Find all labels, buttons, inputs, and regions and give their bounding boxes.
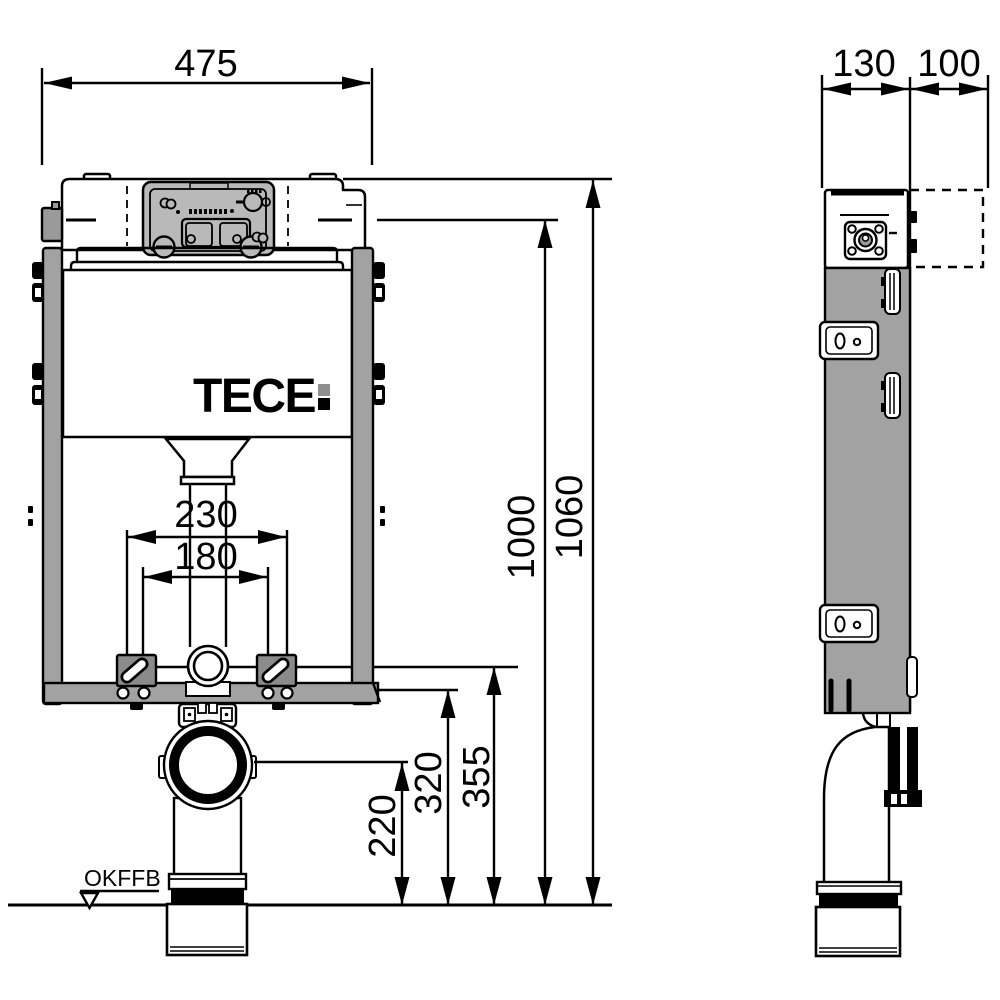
dim-spacing-inner: 180	[144, 536, 267, 584]
dim-frame-height-label: 1000	[501, 495, 543, 580]
technical-drawing-page: 475	[0, 0, 1000, 1000]
dim-width: 475	[42, 43, 372, 165]
side-view: 130 100	[816, 43, 988, 956]
access-panel	[143, 182, 274, 258]
okffb-marker: OKFFB	[80, 865, 161, 908]
arrowhead-left	[44, 77, 72, 90]
wall-bracket-plate-lower	[820, 605, 878, 642]
installation-drawing: 475	[0, 0, 1000, 1000]
flush-plate-zone-dashed	[910, 190, 983, 267]
right-rail	[352, 248, 373, 704]
dim-depths: 130 100	[822, 43, 988, 188]
dim-355: 355	[456, 667, 502, 905]
dim-outlet-height: 220	[362, 763, 410, 905]
drain-socket	[167, 874, 247, 955]
dim-355-label: 355	[456, 745, 498, 808]
side-body	[820, 268, 917, 713]
seal-band	[819, 894, 898, 907]
dim-width-label: 475	[174, 43, 237, 85]
arrowhead-right	[342, 77, 370, 90]
tece-logo: TECE	[193, 370, 316, 423]
dim-frame-height: 1000	[501, 220, 553, 905]
connection-flange	[845, 222, 886, 259]
water-connection-box	[825, 190, 917, 268]
wall-bracket-plate-upper	[820, 322, 878, 359]
front-view: 475	[8, 43, 612, 955]
dim-outlet-height-label: 220	[362, 794, 404, 857]
dim-total-height-label: 1060	[549, 475, 591, 560]
seal-band	[171, 889, 244, 905]
dim-320: 320	[408, 690, 456, 905]
adjustment-knob-icon	[244, 193, 262, 211]
drain-elbow-side	[816, 713, 922, 956]
dim-depth-front-label: 100	[917, 43, 980, 85]
wc-mounting-block-left	[117, 655, 156, 686]
dim-spacing-inner-label: 180	[174, 536, 237, 578]
dim-320-label: 320	[408, 751, 450, 814]
logo-colon-top	[318, 384, 330, 396]
foot	[272, 703, 285, 710]
drain-assembly	[159, 703, 256, 876]
foot	[130, 703, 143, 710]
dim-depth-body-label: 130	[832, 43, 895, 85]
cistern-tank: TECE	[63, 248, 352, 437]
logo-colon-bottom	[318, 398, 330, 410]
left-rail	[43, 248, 62, 704]
dim-spacing-outer-label: 230	[174, 494, 237, 536]
side-tab	[907, 657, 917, 697]
wc-mounting-block-right	[257, 655, 296, 686]
dim-total-height: 1060	[549, 180, 601, 905]
side-tab	[42, 208, 62, 241]
screw-icon	[167, 200, 176, 209]
floor-level-label: OKFFB	[84, 865, 161, 891]
